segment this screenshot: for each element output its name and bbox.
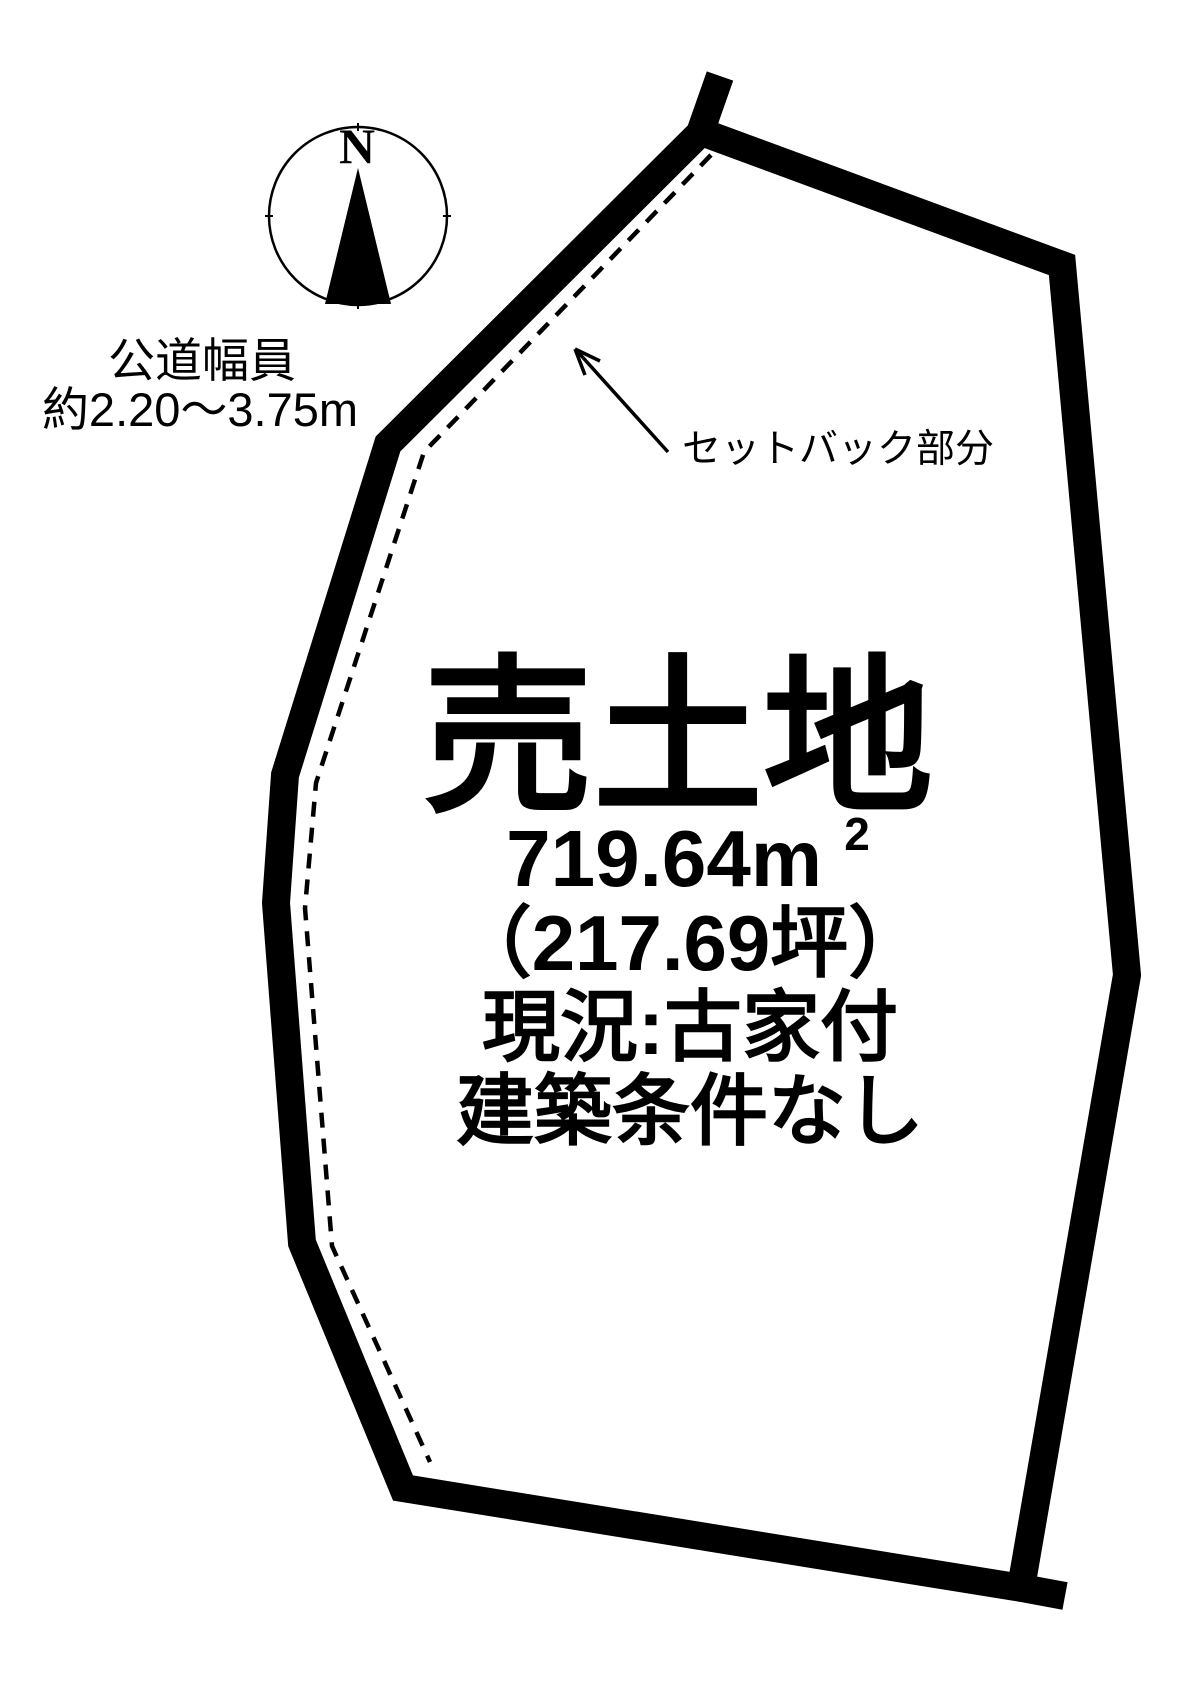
setback-arrow [575,349,668,452]
parcel-building-conditions: 建築条件なし [456,1067,924,1155]
road-width-line1: 公道幅員 [108,334,296,387]
parcel-area-m2-sup: 2 [844,808,870,860]
compass-north-label: N [339,118,375,174]
land-plot-diagram: N 公道幅員 約2.20～3.75m セットバック部分 売土地 719.64m … [0,0,1193,1704]
compass-needle-icon [325,168,391,304]
parcel-title: 売土地 [423,644,933,834]
parcel-area-tsubo: （217.69坪） [454,899,927,987]
road-width-line2: 約2.20～3.75m [42,383,358,436]
parcel-current-status: 現況:古家付 [482,983,898,1071]
road-width-label: 公道幅員 約2.20～3.75m [42,334,358,436]
parcel-area-m2: 719.64m 2 [506,808,870,903]
plot-map-svg: N 公道幅員 約2.20～3.75m セットバック部分 売土地 719.64m … [0,0,1193,1704]
parcel-area-m2-value: 719.64m [506,814,822,903]
parcel-info: 売土地 719.64m 2 （217.69坪） 現況:古家付 建築条件なし [423,644,933,1155]
setback-label: セットバック部分 [682,428,994,471]
compass: N [265,118,451,309]
